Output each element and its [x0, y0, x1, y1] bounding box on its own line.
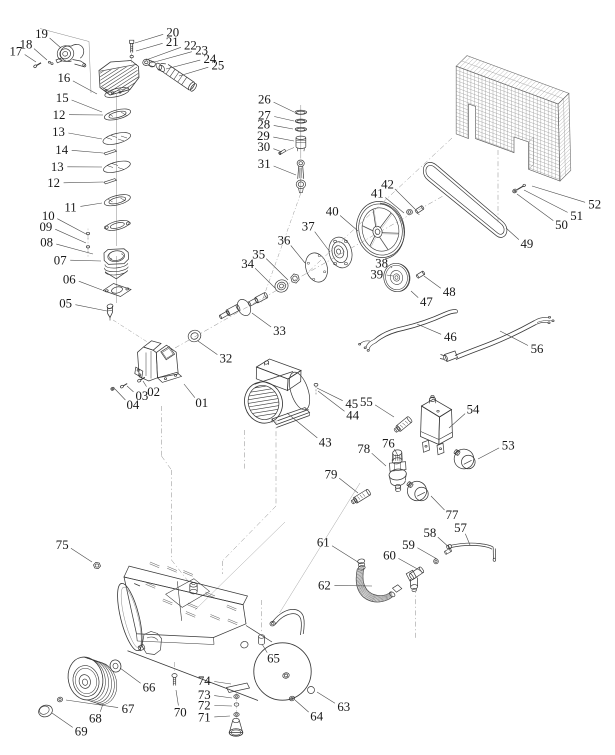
svg-text:78: 78 [357, 442, 370, 456]
svg-text:42: 42 [381, 178, 394, 192]
svg-text:53: 53 [502, 438, 515, 452]
svg-text:45: 45 [345, 397, 358, 411]
svg-text:26: 26 [258, 93, 271, 107]
svg-text:07: 07 [54, 253, 67, 267]
svg-text:33: 33 [273, 324, 286, 338]
svg-text:12: 12 [47, 176, 60, 190]
svg-text:35: 35 [252, 247, 265, 261]
svg-text:30: 30 [257, 140, 270, 154]
svg-text:36: 36 [278, 234, 291, 248]
svg-text:67: 67 [122, 702, 135, 716]
svg-text:13: 13 [51, 160, 64, 174]
svg-text:65: 65 [267, 651, 280, 665]
svg-text:01: 01 [195, 396, 208, 410]
svg-text:62: 62 [318, 579, 331, 593]
svg-text:08: 08 [40, 236, 53, 250]
svg-text:31: 31 [258, 157, 271, 171]
svg-text:02: 02 [147, 385, 160, 399]
svg-text:11: 11 [64, 201, 76, 215]
svg-text:63: 63 [337, 700, 350, 714]
svg-text:15: 15 [56, 91, 69, 105]
svg-text:46: 46 [444, 330, 457, 344]
svg-text:59: 59 [402, 538, 415, 552]
svg-text:04: 04 [127, 398, 140, 412]
svg-text:74: 74 [198, 674, 211, 688]
svg-text:49: 49 [521, 237, 534, 251]
svg-text:14: 14 [55, 143, 68, 157]
svg-text:66: 66 [143, 680, 156, 694]
svg-text:61: 61 [317, 536, 330, 550]
svg-text:68: 68 [89, 711, 102, 725]
svg-text:12: 12 [53, 108, 66, 122]
svg-text:19: 19 [35, 27, 48, 41]
svg-text:43: 43 [319, 436, 332, 450]
svg-text:10: 10 [42, 209, 55, 223]
svg-text:57: 57 [454, 521, 467, 535]
svg-text:13: 13 [52, 125, 65, 139]
svg-text:21: 21 [166, 35, 179, 49]
svg-text:06: 06 [63, 272, 76, 286]
svg-text:56: 56 [531, 342, 544, 356]
svg-text:39: 39 [370, 268, 383, 282]
svg-text:69: 69 [75, 724, 88, 738]
svg-text:79: 79 [325, 467, 338, 481]
svg-text:40: 40 [326, 205, 339, 219]
svg-text:51: 51 [570, 209, 583, 223]
svg-text:25: 25 [212, 59, 225, 73]
svg-text:75: 75 [56, 538, 69, 552]
svg-text:58: 58 [424, 526, 437, 540]
svg-text:60: 60 [383, 549, 396, 563]
svg-text:54: 54 [467, 403, 480, 417]
svg-text:47: 47 [420, 295, 433, 309]
svg-text:64: 64 [310, 710, 323, 724]
svg-text:52: 52 [588, 198, 601, 212]
svg-text:50: 50 [555, 218, 568, 232]
svg-text:32: 32 [220, 352, 233, 366]
svg-text:73: 73 [198, 688, 211, 702]
svg-text:37: 37 [302, 220, 315, 234]
svg-text:18: 18 [20, 38, 33, 52]
svg-text:70: 70 [174, 706, 187, 720]
svg-text:16: 16 [58, 71, 71, 85]
svg-text:05: 05 [59, 297, 72, 311]
svg-text:55: 55 [360, 395, 373, 409]
svg-text:77: 77 [446, 508, 459, 522]
svg-text:76: 76 [382, 437, 395, 451]
svg-text:48: 48 [443, 285, 456, 299]
